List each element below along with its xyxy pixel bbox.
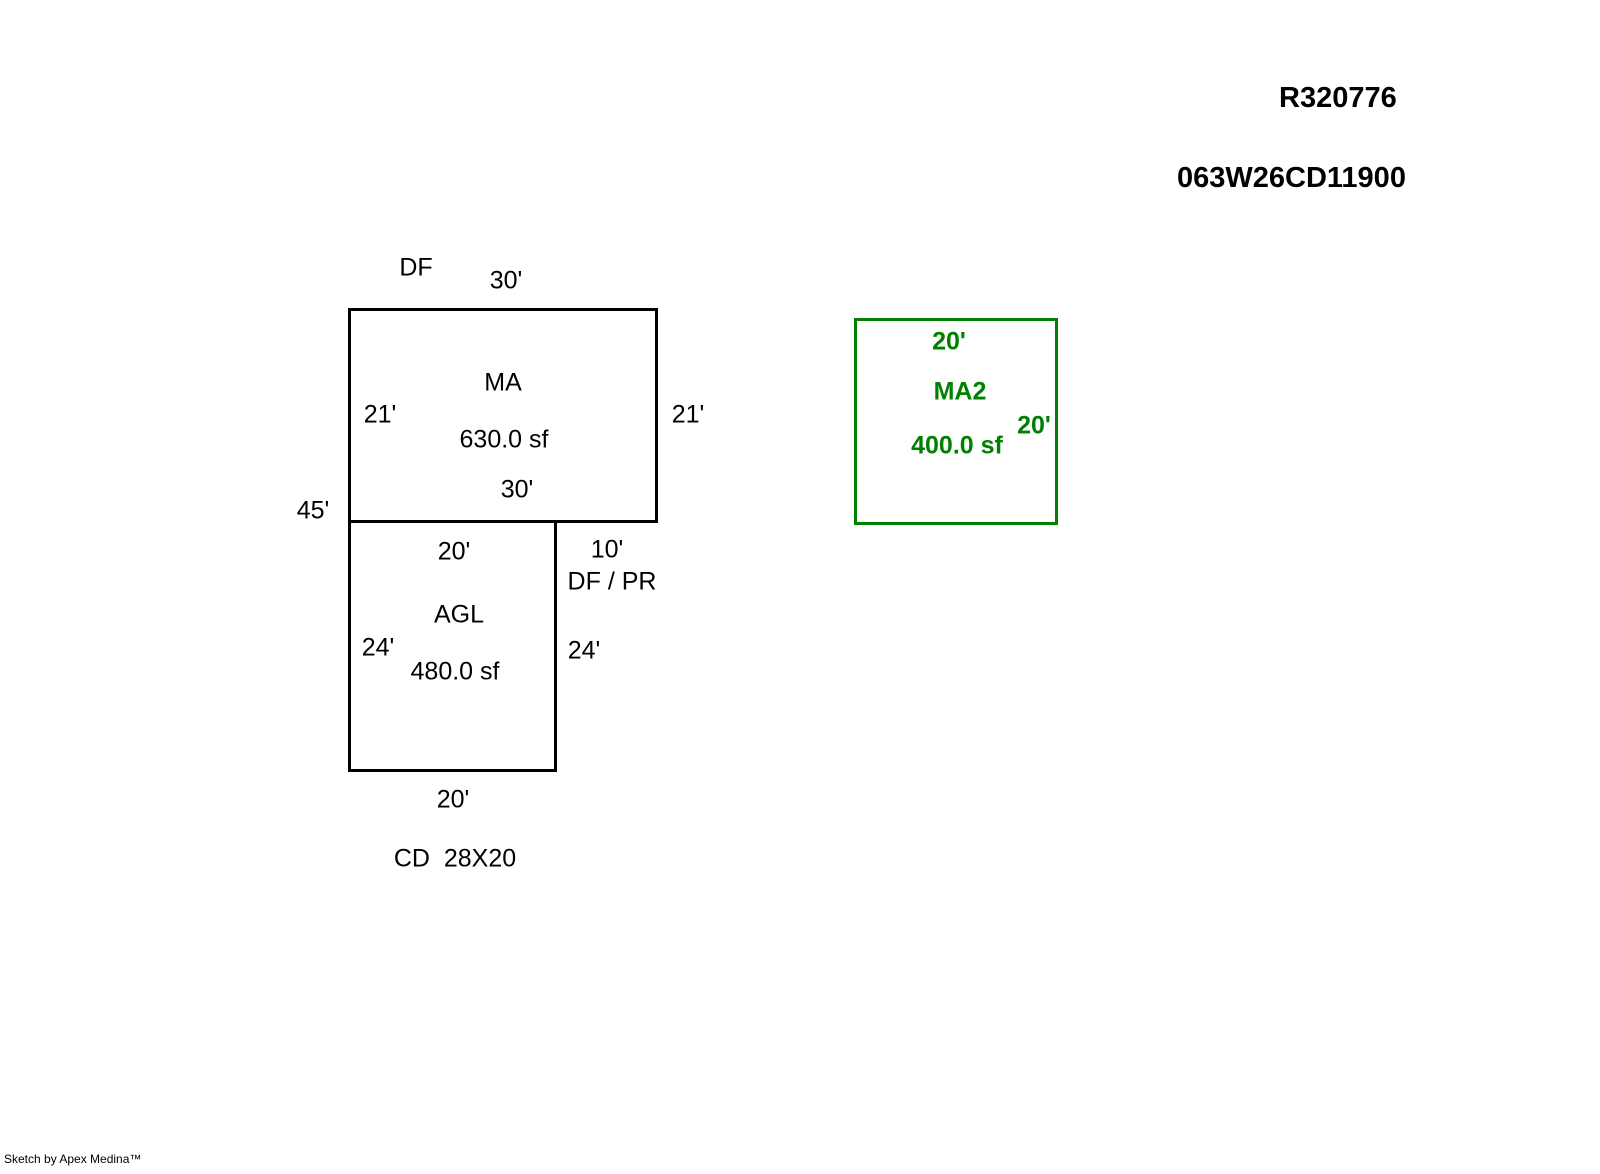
cd-note: CD 28X20 bbox=[394, 845, 516, 873]
sketch-page: R320776 063W26CD11900 DF30'MA21'21'630.0… bbox=[0, 0, 1600, 1174]
agl-top-dim: 20' bbox=[438, 538, 471, 566]
ma-top-dim: 30' bbox=[490, 267, 523, 295]
ma2-area: 400.0 sf bbox=[911, 432, 1003, 460]
agl-right-dim: 24' bbox=[568, 637, 601, 665]
df-pr-note: DF / PR bbox=[568, 568, 657, 596]
ma-right-dim: 21' bbox=[672, 401, 705, 429]
ma-area: 630.0 sf bbox=[460, 426, 549, 454]
ma-bottom-dim: 30' bbox=[501, 476, 534, 504]
agl-area: 480.0 sf bbox=[411, 658, 500, 686]
agl-bottom-dim: 20' bbox=[437, 786, 470, 814]
ma-left-dim: 21' bbox=[364, 401, 397, 429]
notch-dim: 10' bbox=[591, 536, 624, 564]
agl-left-dim: 24' bbox=[362, 634, 395, 662]
ma2-title: MA2 bbox=[934, 378, 987, 406]
sketch-canvas: DF30'MA21'21'630.0 sf30'45'20'10'DF / PR… bbox=[0, 0, 1600, 1174]
ma-title: MA bbox=[484, 369, 522, 397]
ma2-right-dim: 20' bbox=[1017, 412, 1051, 440]
left-total-dim: 45' bbox=[297, 497, 330, 525]
footer-credit: Sketch by Apex Medina™ bbox=[4, 1152, 141, 1166]
agl-title: AGL bbox=[434, 601, 484, 629]
df-note: DF bbox=[399, 254, 432, 282]
ma2-top-dim: 20' bbox=[932, 328, 966, 356]
